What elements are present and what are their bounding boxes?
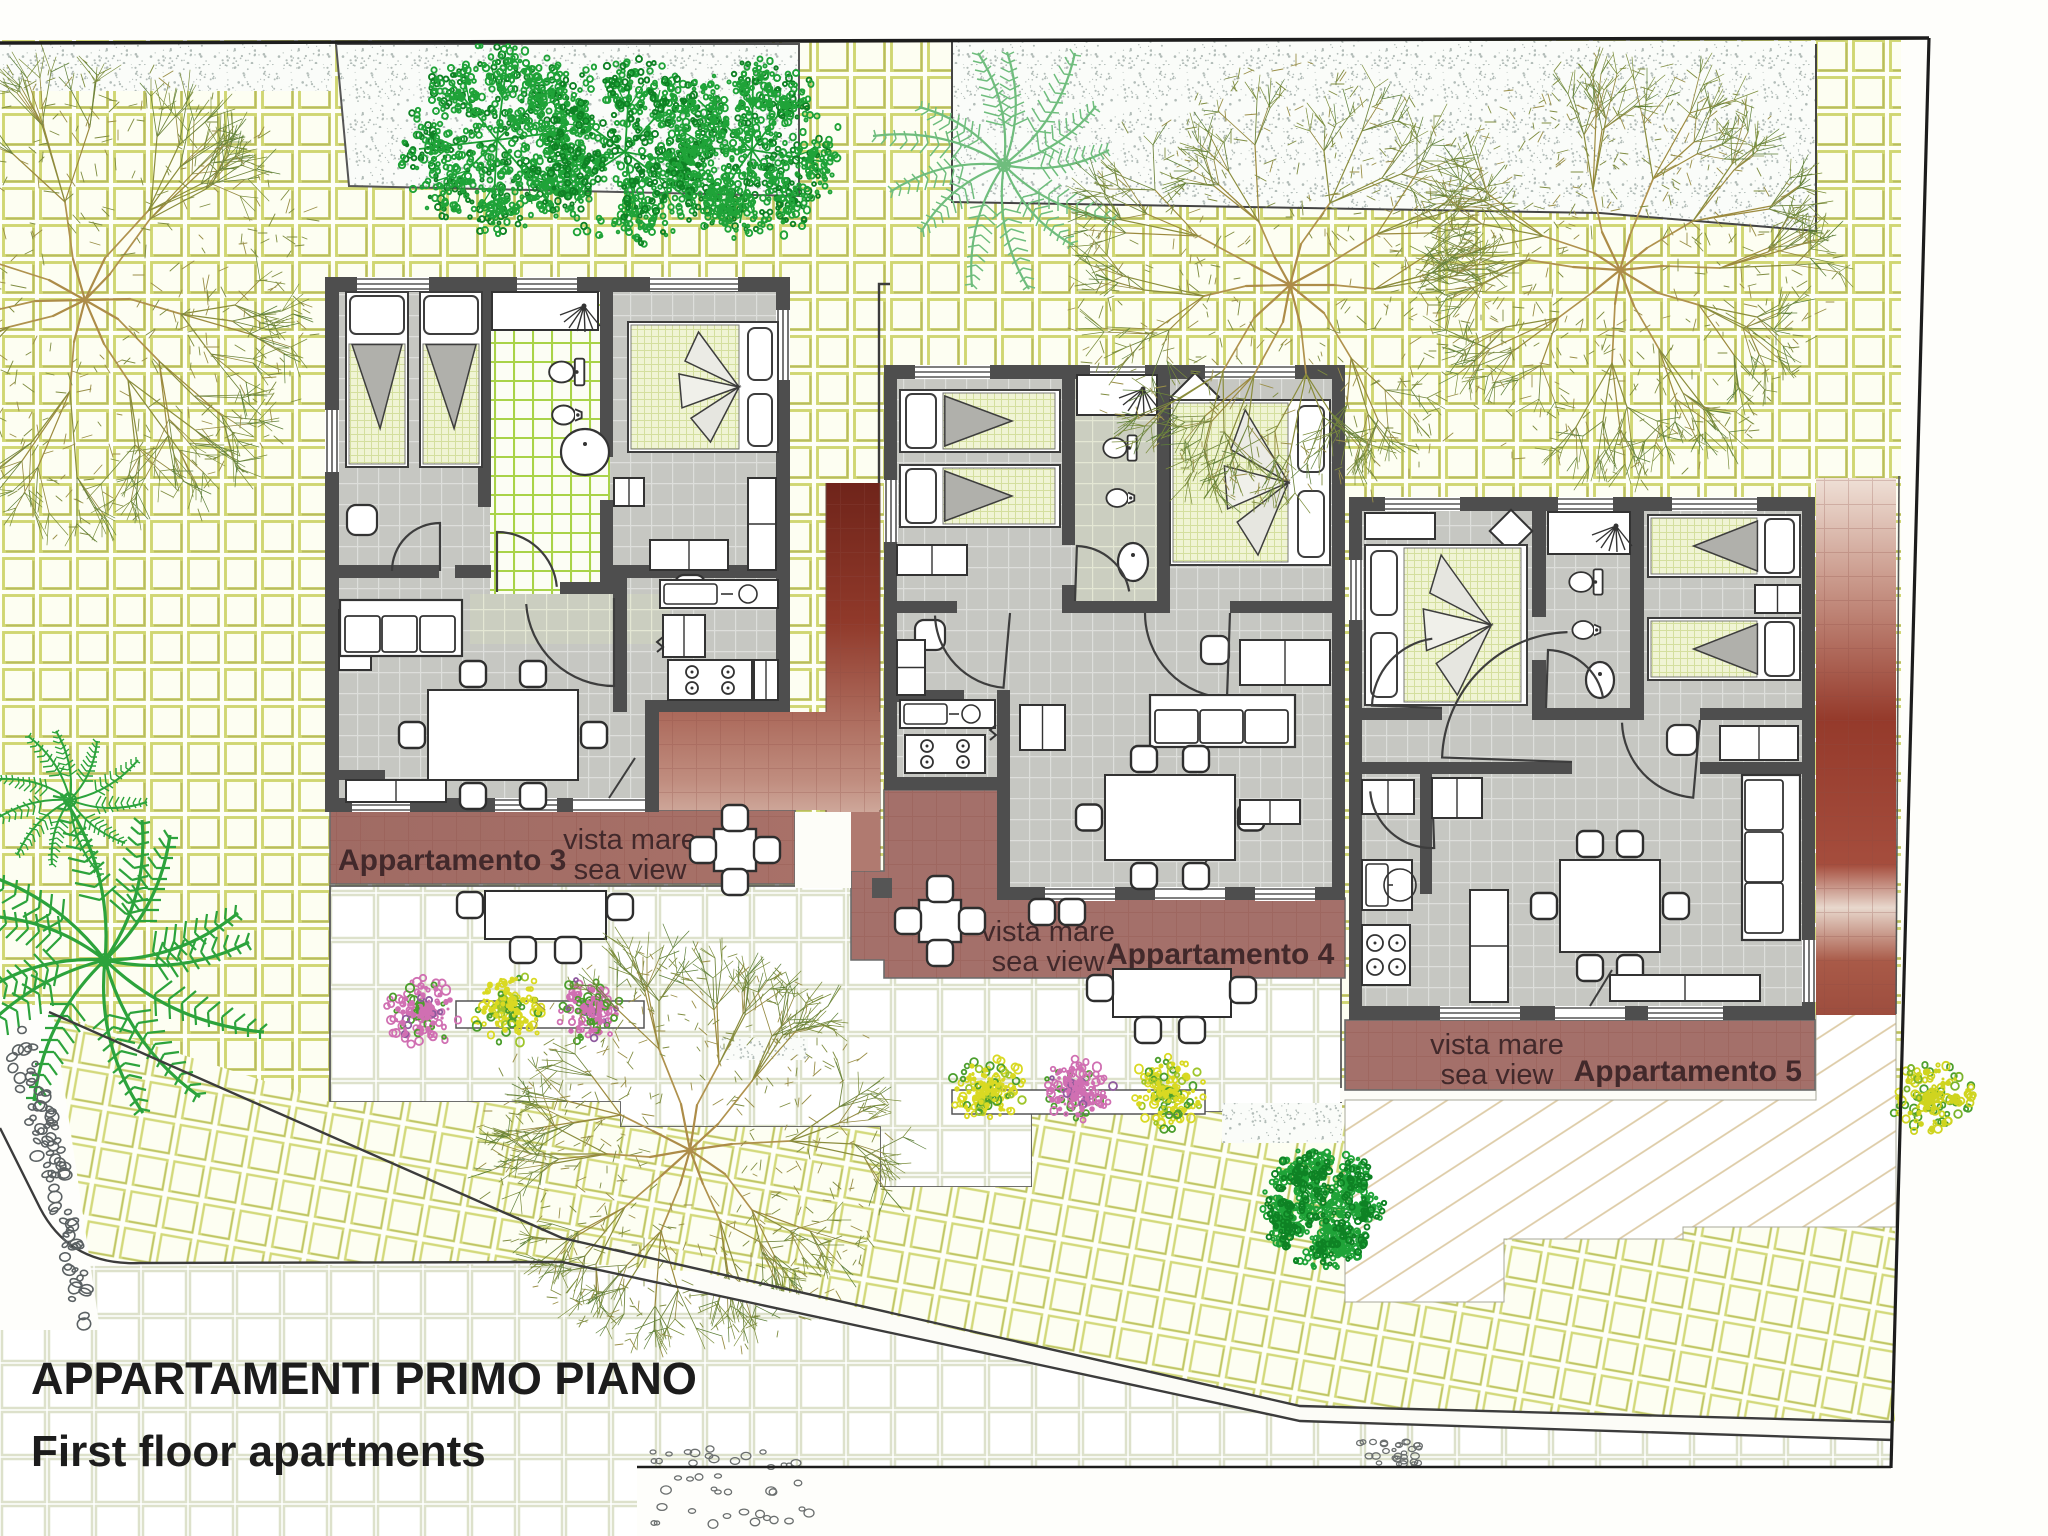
svg-text:sea view: sea view: [1441, 1059, 1555, 1091]
svg-text:sea view: sea view: [574, 854, 688, 886]
svg-text:APPARTAMENTI PRIMO PIANO: APPARTAMENTI PRIMO PIANO: [31, 1353, 697, 1404]
svg-text:vista mare: vista mare: [1430, 1029, 1564, 1061]
svg-text:First floor apartments: First floor apartments: [31, 1427, 486, 1476]
svg-text:vista mare: vista mare: [563, 824, 697, 856]
svg-text:Appartamento 5: Appartamento 5: [1574, 1055, 1802, 1088]
svg-text:Appartamento 3: Appartamento 3: [338, 844, 566, 877]
svg-text:Appartamento 4: Appartamento 4: [1106, 938, 1335, 971]
svg-text:sea view: sea view: [992, 946, 1106, 978]
